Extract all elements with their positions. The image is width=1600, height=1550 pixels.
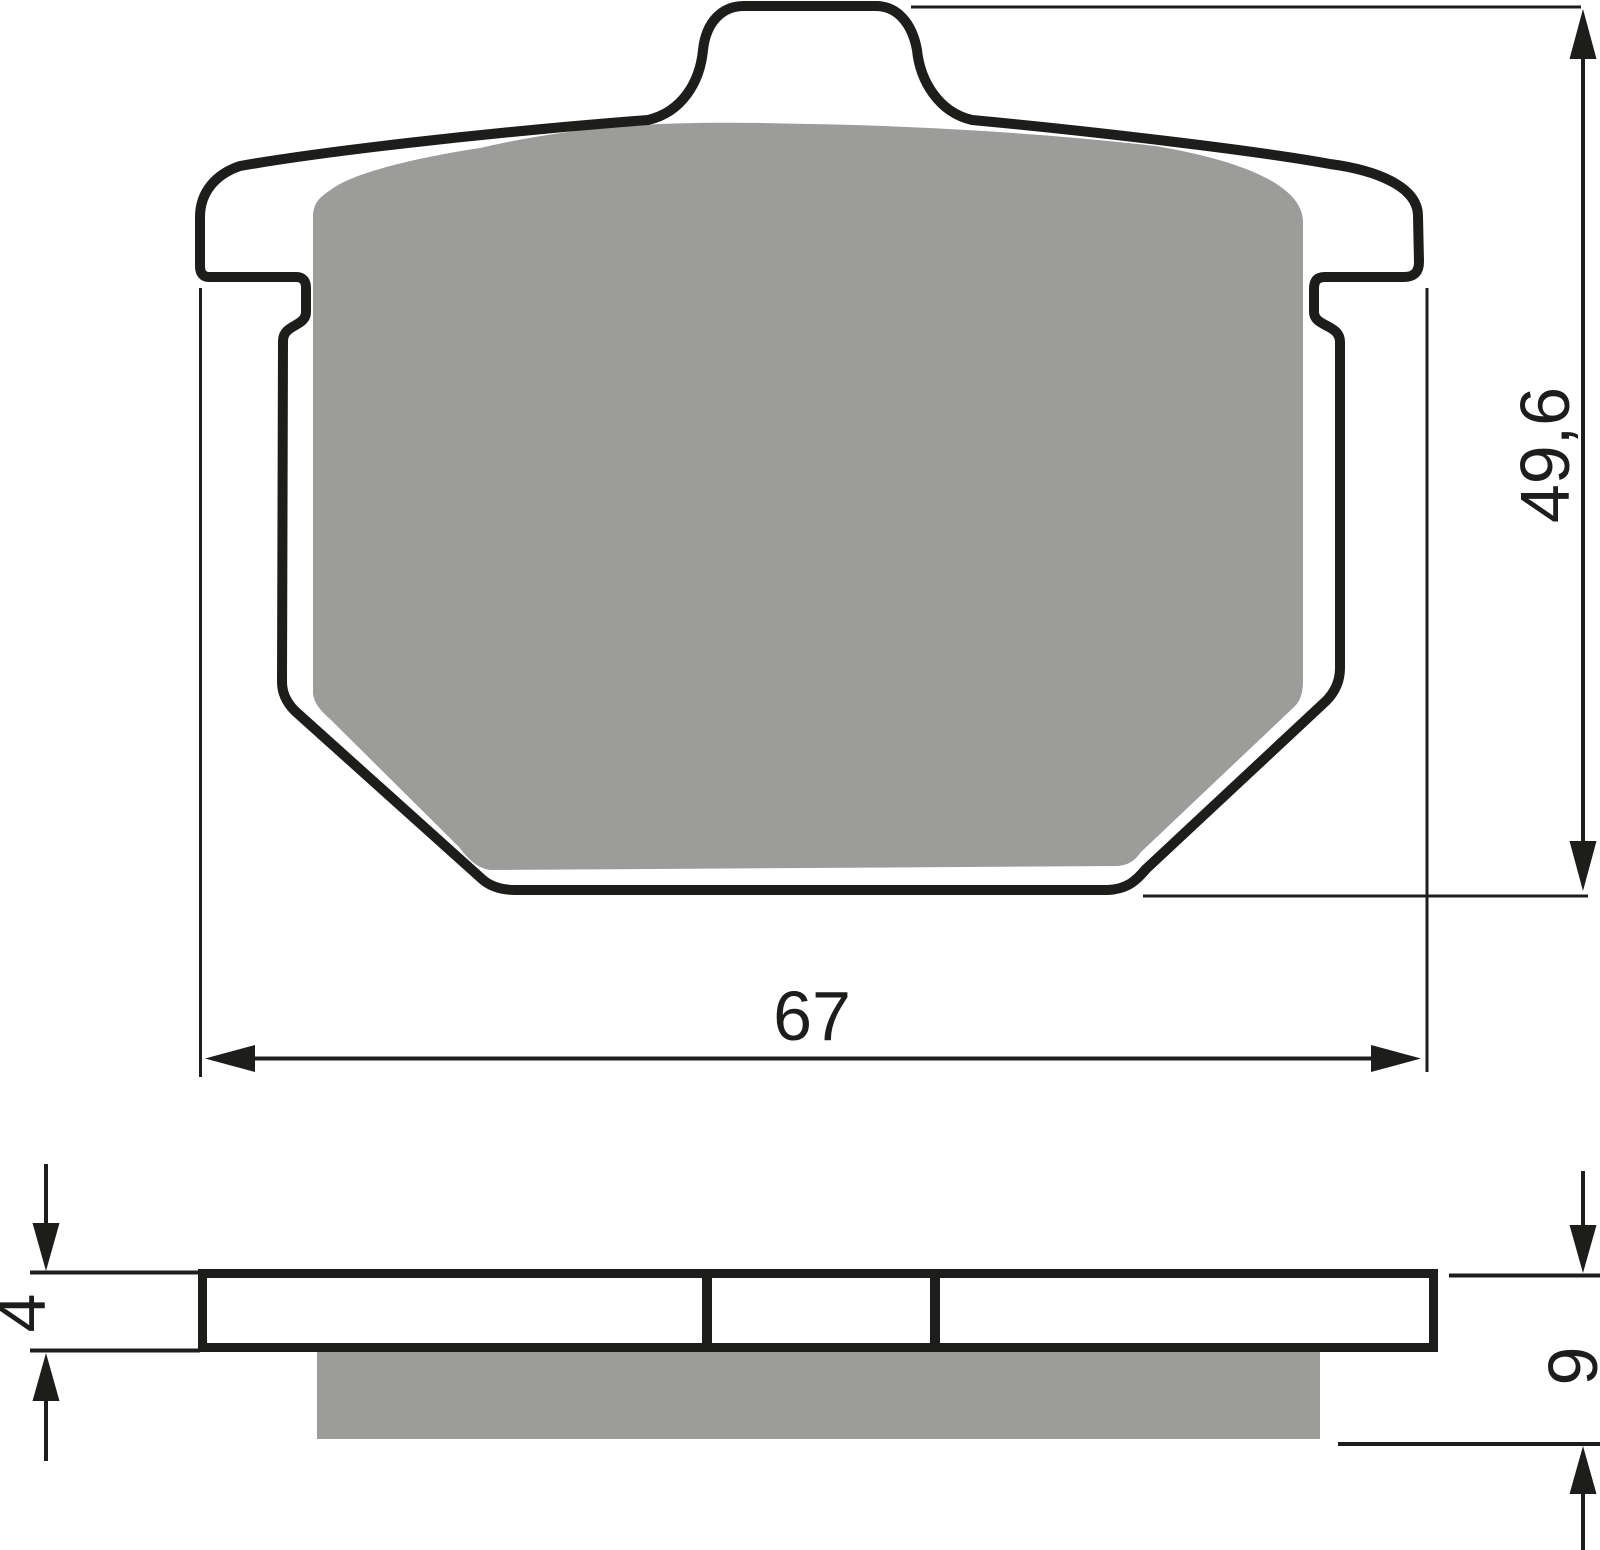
svg-text:67: 67 bbox=[773, 977, 851, 1055]
svg-text:4: 4 bbox=[0, 1294, 60, 1333]
svg-text:9: 9 bbox=[1534, 1347, 1600, 1386]
svg-text:49,6: 49,6 bbox=[1506, 387, 1584, 523]
